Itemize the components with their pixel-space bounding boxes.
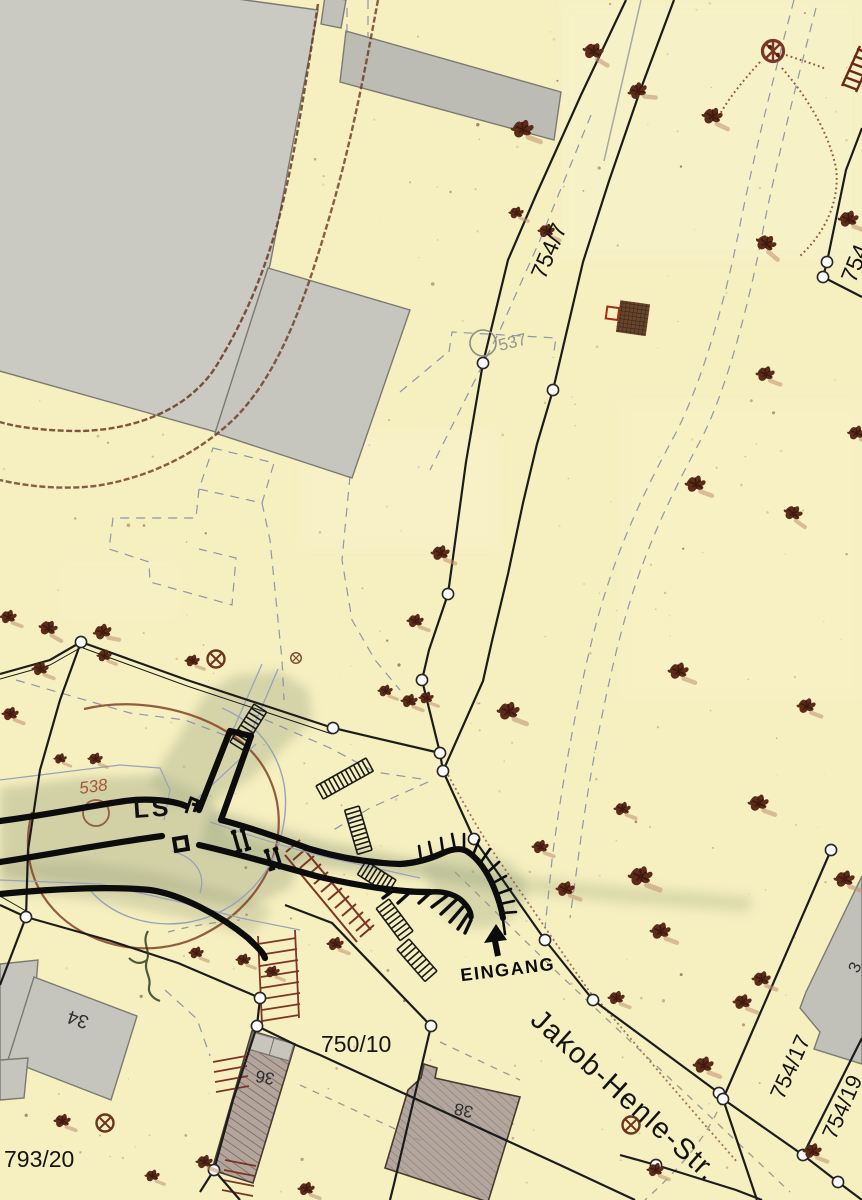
svg-text:38: 38 <box>452 1099 474 1122</box>
svg-text:36: 36 <box>254 1066 276 1088</box>
svg-text:538: 538 <box>78 775 109 798</box>
svg-text:LS: LS <box>132 793 172 824</box>
svg-text:750/10: 750/10 <box>321 1031 391 1057</box>
svg-text:793/20: 793/20 <box>4 1146 74 1172</box>
